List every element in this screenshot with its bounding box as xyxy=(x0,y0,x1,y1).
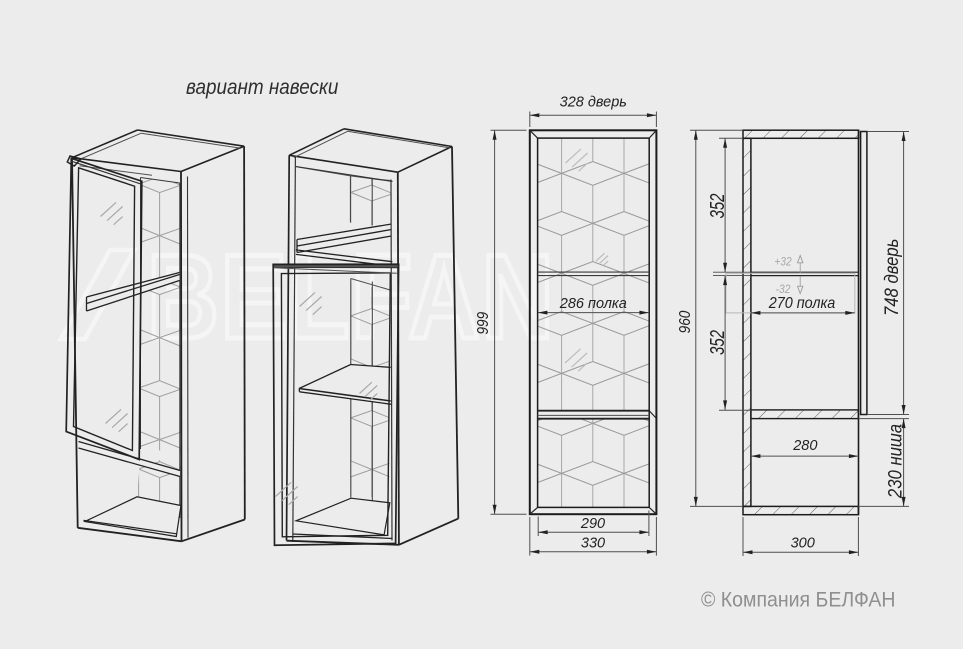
svg-text:748 дверь: 748 дверь xyxy=(881,239,902,316)
svg-text:290: 290 xyxy=(580,516,605,532)
svg-text:© Компания БЕЛФАН: © Компания БЕЛФАН xyxy=(701,589,895,612)
svg-text:960: 960 xyxy=(677,310,694,333)
svg-text:270 полка: 270 полка xyxy=(768,294,836,312)
svg-text:328 дверь: 328 дверь xyxy=(560,95,627,111)
svg-text:286 полка: 286 полка xyxy=(559,296,627,312)
svg-text:300: 300 xyxy=(791,536,815,552)
svg-text:+32: +32 xyxy=(774,256,792,269)
svg-text:280: 280 xyxy=(792,438,817,454)
svg-text:230 ниша: 230 ниша xyxy=(885,424,906,499)
svg-text:вариант навески: вариант навески xyxy=(186,76,338,99)
svg-text:999: 999 xyxy=(475,312,492,335)
svg-text:330: 330 xyxy=(581,536,605,552)
